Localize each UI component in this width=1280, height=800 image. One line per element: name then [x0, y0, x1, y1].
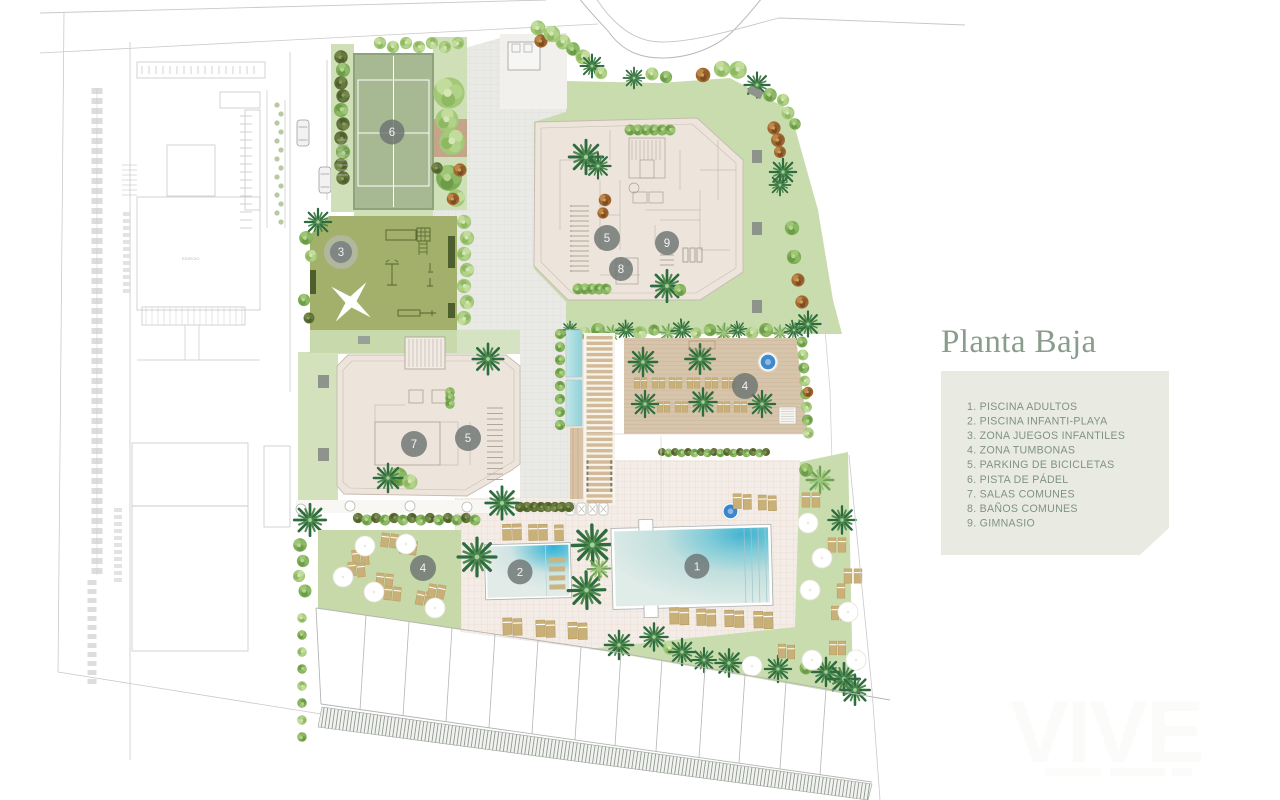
svg-text:5. PARKING DE BICICLETAS: 5. PARKING DE BICICLETAS [967, 459, 1115, 471]
svg-text:8. BAÑOS COMUNES: 8. BAÑOS COMUNES [967, 502, 1078, 515]
svg-text:4. ZONA TUMBONAS: 4. ZONA TUMBONAS [967, 445, 1075, 457]
svg-text:6: 6 [389, 127, 395, 139]
svg-text:3: 3 [338, 247, 344, 259]
svg-text:2. PISCINA INFANTI-PLAYA: 2. PISCINA INFANTI-PLAYA [967, 416, 1108, 428]
svg-text:9: 9 [664, 238, 670, 250]
svg-text:EDIFICIO: EDIFICIO [182, 256, 199, 261]
svg-text:Planta Baja: Planta Baja [941, 324, 1097, 360]
svg-text:8: 8 [618, 264, 624, 276]
svg-text:2: 2 [517, 567, 524, 579]
svg-text:3. ZONA JUEGOS INFANTILES: 3. ZONA JUEGOS INFANTILES [967, 430, 1125, 442]
svg-text:4: 4 [420, 563, 427, 575]
svg-text:4: 4 [742, 381, 749, 393]
svg-text:VIVE: VIVE [1010, 682, 1203, 781]
svg-text:5: 5 [604, 233, 610, 245]
svg-text:7: 7 [411, 439, 417, 451]
svg-text:7. SALAS COMUNES: 7. SALAS COMUNES [967, 488, 1075, 500]
svg-text:6. PISTA DE PÁDEL: 6. PISTA DE PÁDEL [967, 473, 1068, 486]
svg-text:5: 5 [465, 433, 471, 445]
svg-text:1: 1 [694, 561, 701, 573]
svg-text:1. PISCINA ADULTOS: 1. PISCINA ADULTOS [967, 401, 1077, 413]
svg-text:9. GIMNASIO: 9. GIMNASIO [967, 517, 1035, 529]
